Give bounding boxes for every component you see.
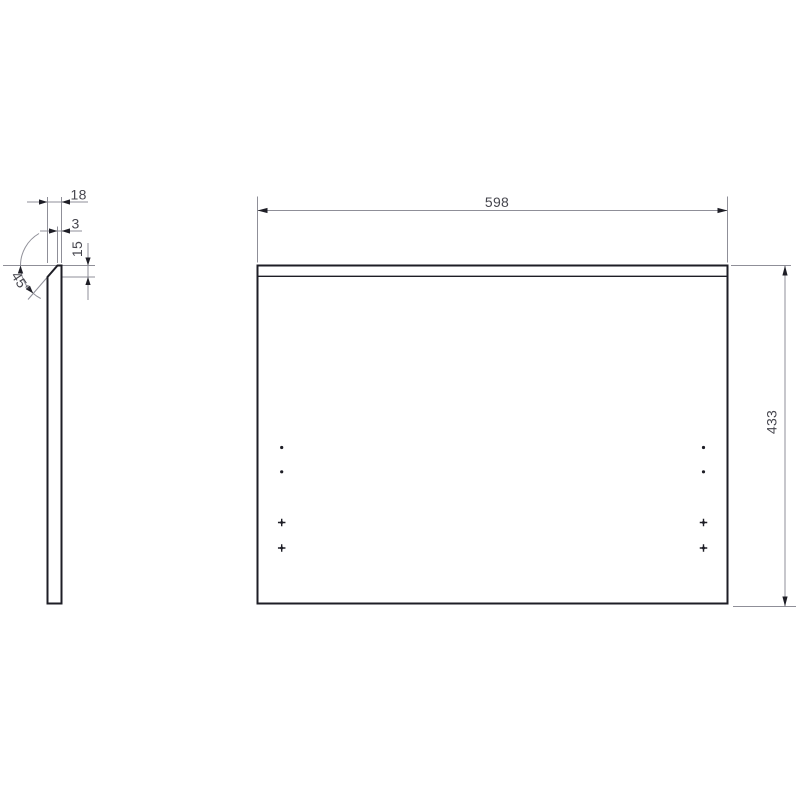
arrowhead (49, 228, 58, 233)
front-view: 598 433 (258, 194, 797, 607)
arrowhead (258, 208, 268, 213)
dimension-label-top-edge: 3 (72, 216, 80, 232)
hole-dot-marker (702, 446, 705, 449)
arrowhead (62, 199, 71, 204)
arrowhead (782, 266, 787, 276)
dimension-label-thickness: 18 (71, 187, 87, 203)
side-panel-outline (48, 266, 62, 604)
dimension-label-chamfer-angle: 45° (8, 269, 33, 296)
arrowhead (85, 277, 90, 285)
dimension-height: 433 (731, 266, 796, 607)
arrowhead (39, 199, 48, 204)
hole-dot-marker (280, 470, 283, 473)
dimension-width: 598 (258, 194, 728, 263)
arrowhead (62, 228, 71, 233)
hole-dot-marker (280, 446, 283, 449)
arrowhead (85, 258, 90, 266)
dimension-label-height: 433 (764, 410, 780, 434)
hole-dot-marker (702, 470, 705, 473)
arrowhead (782, 597, 787, 607)
front-panel-outline (258, 266, 728, 604)
technical-drawing: 18 3 15 45° (0, 0, 800, 800)
dimension-chamfer-angle: 45° (8, 234, 47, 300)
side-view: 18 3 15 45° (3, 187, 95, 604)
dimension-label-chamfer-depth: 15 (69, 241, 85, 257)
arrowhead (718, 208, 728, 213)
drawing-canvas: 18 3 15 45° (0, 0, 800, 800)
dimension-label-width: 598 (485, 194, 509, 210)
